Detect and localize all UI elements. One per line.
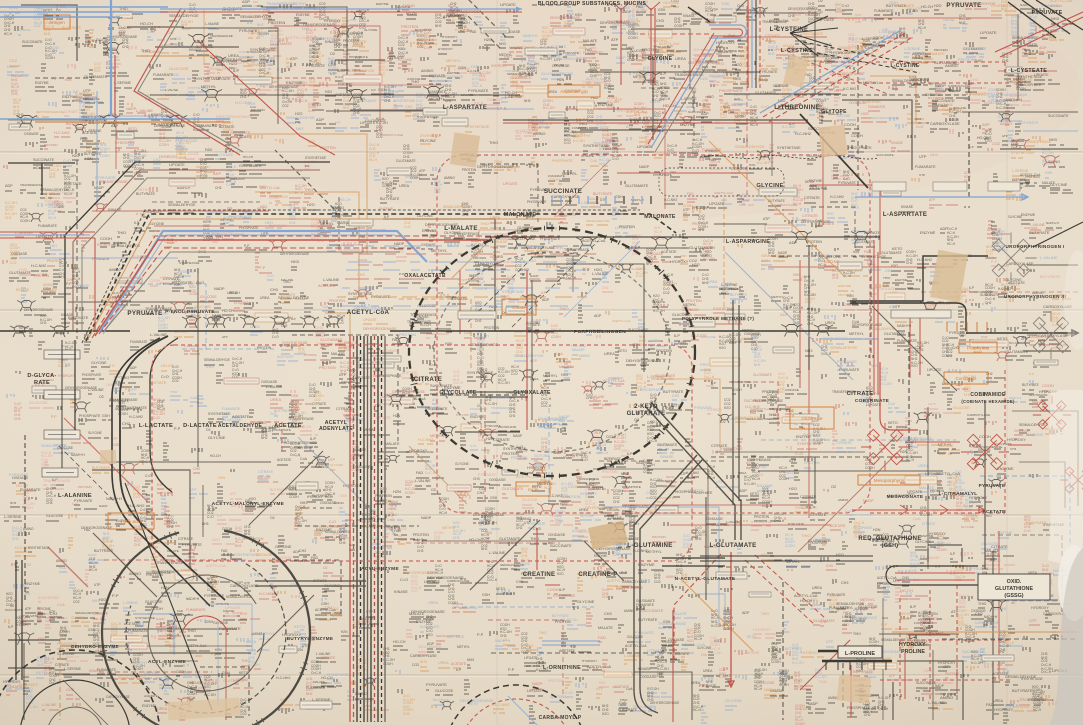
svg-text:OXIDASE: OXIDASE [548,532,566,537]
svg-text:GLYCINE: GLYCINE [961,525,974,529]
svg-text:CITRATE: CITRATE [387,55,404,60]
svg-text:DEHYDROGENASE: DEHYDROGENASE [460,699,494,703]
svg-text:O2: O2 [831,484,836,489]
svg-text:UREA: UREA [399,184,410,188]
svg-text:PYRUVATE: PYRUVATE [837,360,857,364]
svg-text:ADP: ADP [943,665,950,669]
svg-text:THIO: THIO [721,2,730,6]
svg-text:NH3: NH3 [10,501,16,505]
svg-text:CH2: CH2 [657,674,664,678]
svg-text:PHOSPHATE: PHOSPHATE [379,374,402,378]
svg-text:GLUTAMATE: GLUTAMATE [396,159,416,163]
svg-text:H2O: H2O [734,97,741,101]
svg-text:GLUTAMATE: GLUTAMATE [499,537,521,541]
svg-text:ATP: ATP [889,674,895,678]
svg-text:NH2: NH2 [343,106,350,110]
svg-text:ACETYL-CoA: ACETYL-CoA [626,110,648,114]
svg-text:O=C-H: O=C-H [297,99,308,103]
svg-text:ADP: ADP [680,254,686,258]
svg-text:H2O: H2O [249,497,256,501]
svg-text:ENZYME: ENZYME [35,81,50,85]
svg-text:UREA: UREA [438,661,449,665]
svg-text:FUMARATE: FUMARATE [636,603,655,607]
svg-text:MALATE: MALATE [598,626,613,630]
svg-text:HYDROXY: HYDROXY [994,707,1014,712]
svg-text:BUTYRATE: BUTYRATE [785,647,802,651]
svg-text:THIO: THIO [170,390,178,394]
svg-text:SUCCINATE: SUCCINATE [420,625,440,629]
svg-text:HC-H: HC-H [947,242,956,246]
svg-text:CH3: CH3 [826,564,833,568]
svg-text:CH2: CH2 [19,267,27,272]
svg-text:AMINO: AMINO [251,632,262,636]
svg-text:PROTEIN: PROTEIN [619,225,635,229]
svg-text:GLUTAMATE: GLUTAMATE [239,164,262,168]
svg-text:COOH: COOH [327,244,339,248]
svg-text:HYDROXY: HYDROXY [580,492,598,496]
svg-text:OXID.: OXID. [1007,579,1022,585]
svg-text:CH3: CH3 [661,85,669,90]
svg-text:MALONATE: MALONATE [644,214,676,220]
svg-text:CITRATE: CITRATE [1012,178,1027,182]
svg-text:PYRUVATE: PYRUVATE [478,473,497,477]
svg-text:MALATE: MALATE [583,39,598,43]
svg-text:FAD: FAD [819,679,827,684]
svg-text:UREA: UREA [530,377,540,381]
svg-text:H-C-NH2: H-C-NH2 [917,258,932,262]
svg-text:CH3: CH3 [910,569,917,573]
svg-text:COOH: COOH [405,491,415,495]
svg-text:CH2: CH2 [134,543,141,547]
svg-text:ADP: ADP [316,117,324,122]
svg-text:H2O: H2O [307,203,315,207]
svg-text:PHOSPHATE: PHOSPHATE [239,226,258,230]
svg-text:H-C-OH: H-C-OH [703,257,715,261]
svg-text:HO-CH: HO-CH [222,309,234,313]
svg-text:KINASE: KINASE [891,141,904,145]
svg-text:SYNTHETASE: SYNTHETASE [282,340,308,345]
svg-text:FUMARATE: FUMARATE [38,224,58,228]
svg-text:LIPOATE: LIPOATE [637,145,653,149]
svg-text:Citrate: Citrate [512,305,526,310]
svg-text:NH3: NH3 [1051,16,1059,21]
svg-text:CO2: CO2 [654,580,661,584]
svg-text:UREA: UREA [428,601,439,605]
svg-text:C=O: C=O [636,274,643,278]
svg-text:GLUTAMATE: GLUTAMATE [753,373,772,377]
svg-text:DEHYDRO-ENZYME: DEHYDRO-ENZYME [71,644,119,649]
svg-text:UTP: UTP [826,640,834,644]
svg-text:SEMIALDEHYDE: SEMIALDEHYDE [1019,423,1046,427]
svg-text:PROTEIN: PROTEIN [484,326,500,330]
svg-text:BUTYRATE: BUTYRATE [1022,383,1039,387]
svg-text:CH3: CH3 [11,92,18,96]
svg-text:BUTYRATE: BUTYRATE [136,192,156,196]
svg-text:H2N: H2N [599,681,606,685]
svg-text:HC-H: HC-H [906,458,915,462]
svg-text:CH3: CH3 [952,346,959,350]
svg-text:O2: O2 [27,563,31,567]
svg-text:FAD: FAD [205,148,213,152]
svg-text:C=O: C=O [267,274,274,278]
svg-text:METHYL: METHYL [771,295,784,299]
svg-text:LIPOATE: LIPOATE [964,515,979,519]
svg-text:C=O: C=O [845,508,853,513]
svg-text:cycle: cycle [528,487,539,492]
svg-text:METHYL: METHYL [201,85,216,89]
svg-text:CH3: CH3 [902,576,909,580]
svg-text:GLUTAMATE: GLUTAMATE [418,644,442,649]
svg-text:ACETATE: ACETATE [661,250,677,254]
svg-text:OXIDASE: OXIDASE [261,380,278,384]
svg-text:GLYCINE: GLYCINE [580,514,594,518]
svg-text:COOH: COOH [942,354,952,358]
svg-text:HYDROXY: HYDROXY [115,141,133,145]
svg-text:NADP: NADP [94,186,104,190]
svg-text:CO2: CO2 [992,142,1000,146]
svg-text:AMINO: AMINO [421,69,433,73]
svg-text:CH2: CH2 [434,538,441,542]
svg-text:CITRATE: CITRATE [493,437,510,442]
svg-text:COOH: COOH [568,485,579,489]
svg-text:SUCCINATE: SUCCINATE [1048,114,1069,118]
svg-text:L-VALINE: L-VALINE [928,700,945,705]
svg-text:L-ORNITHINE: L-ORNITHINE [543,665,581,671]
svg-text:ATP: ATP [222,335,228,339]
svg-text:NADP: NADP [513,434,523,438]
svg-text:ACETYL-CoA: ACETYL-CoA [582,239,606,243]
svg-text:L-SERINE: L-SERINE [475,263,489,267]
svg-text:NADP: NADP [214,287,225,291]
svg-text:ENZYME: ENZYME [1021,213,1036,217]
svg-text:PHOSPHATE: PHOSPHATE [327,673,350,677]
svg-text:L-VALINE: L-VALINE [1030,223,1046,227]
svg-text:UTP: UTP [94,583,100,587]
svg-text:O=C-H: O=C-H [487,578,498,582]
svg-text:CITRATE: CITRATE [922,522,935,526]
svg-text:Corrinoids: Corrinoids [956,376,978,381]
svg-text:ACETYL-CoA: ACETYL-CoA [625,644,647,648]
svg-text:COOH: COOH [991,101,1001,105]
svg-text:L-THREONINE: L-THREONINE [774,104,820,111]
svg-text:FUMARATE: FUMARATE [306,686,326,690]
svg-text:GSH: GSH [579,46,587,50]
svg-text:HYDROXY: HYDROXY [582,659,597,663]
svg-text:PROTEIN: PROTEIN [754,515,770,519]
svg-text:COOH: COOH [410,176,420,180]
svg-text:H-C-OH: H-C-OH [744,482,756,486]
svg-text:H2O: H2O [99,598,106,602]
svg-text:H2N: H2N [547,223,554,227]
svg-text:GLYCINE: GLYCINE [648,56,673,62]
svg-text:Aspartate grp: Aspartate grp [560,89,588,94]
svg-text:FAD: FAD [245,4,252,8]
svg-text:C=O: C=O [470,444,477,448]
svg-text:CH2: CH2 [672,394,679,398]
svg-text:METHYL: METHYL [562,172,577,176]
svg-text:KETO: KETO [805,180,814,184]
svg-text:NADP: NADP [421,516,432,520]
svg-text:CO2: CO2 [34,24,41,28]
svg-text:H2O: H2O [687,639,694,643]
svg-text:NADH+H: NADH+H [574,133,590,138]
svg-text:D-LACTATE: D-LACTATE [183,423,217,429]
svg-text:OXIDASE: OXIDASE [12,476,29,480]
svg-text:HYDROXY: HYDROXY [159,155,178,159]
svg-text:NADH+H: NADH+H [71,453,85,457]
svg-text:H-C-NH2: H-C-NH2 [418,438,433,442]
svg-text:GLYTOPE: GLYTOPE [821,109,847,115]
svg-text:ADP: ADP [739,489,747,493]
svg-text:OXIDASE: OXIDASE [429,74,446,78]
svg-text:CITRATE: CITRATE [312,402,327,406]
svg-text:P-P: P-P [112,593,119,598]
svg-text:GLYCINE: GLYCINE [208,435,226,440]
svg-text:O=C-H: O=C-H [1004,641,1015,645]
svg-text:KETO: KETO [618,349,627,353]
svg-text:CITRATE: CITRATE [711,443,728,448]
svg-text:COOH: COOH [551,335,561,339]
svg-text:PHOSPHATE: PHOSPHATE [79,414,101,418]
svg-text:ATP: ATP [432,398,439,402]
svg-text:AMINO: AMINO [43,283,54,287]
svg-text:METHYL: METHYL [849,332,864,336]
svg-text:HO-CH: HO-CH [563,455,575,459]
svg-text:L-SERINE: L-SERINE [505,95,523,99]
svg-text:SYNTHETASE: SYNTHETASE [47,616,67,620]
svg-text:NADP: NADP [394,242,405,246]
svg-text:PROTEIN: PROTEIN [251,108,265,112]
svg-text:GLYCINE: GLYCINE [697,646,712,650]
svg-text:CO2: CO2 [417,45,424,49]
svg-text:GLYCINE: GLYCINE [724,49,737,53]
svg-text:NADP: NADP [808,702,818,706]
svg-text:CH2: CH2 [641,8,647,12]
svg-text:O=C-H: O=C-H [1041,670,1052,674]
svg-text:ENZYME: ENZYME [598,103,614,107]
svg-text:H2N: H2N [215,648,222,652]
svg-text:BUTYRYL-ENZYME: BUTYRYL-ENZYME [287,636,333,641]
svg-text:H2O: H2O [295,112,303,116]
svg-text:H2N: H2N [900,450,907,454]
svg-text:MALATE: MALATE [1032,400,1047,404]
svg-text:PYRUVATE: PYRUVATE [966,46,987,51]
svg-text:H2O: H2O [265,220,273,225]
svg-text:THIO: THIO [585,482,594,487]
svg-text:PYRUVATE: PYRUVATE [759,70,778,74]
svg-text:H-C-NH2: H-C-NH2 [296,506,310,510]
svg-text:MALATE: MALATE [1042,181,1056,185]
svg-text:GLUCOSE: GLUCOSE [29,401,48,405]
svg-text:MALATE: MALATE [572,348,585,352]
svg-text:OXIDASE: OXIDASE [785,388,799,392]
svg-text:THIO: THIO [750,335,759,339]
svg-text:OXIDASE: OXIDASE [695,54,712,58]
svg-text:O=C-H: O=C-H [103,539,114,543]
svg-text:NADH+H: NADH+H [1046,221,1059,225]
svg-text:CH2: CH2 [289,221,296,225]
svg-text:L-VALINE: L-VALINE [185,152,199,156]
svg-text:GLYCINE: GLYCINE [91,361,107,365]
svg-text:HO-CH: HO-CH [921,5,933,9]
svg-text:COOH: COOH [150,279,161,283]
svg-text:H2O: H2O [719,346,726,350]
svg-text:GSH: GSH [165,633,173,637]
svg-text:H2O: H2O [827,212,834,216]
svg-text:SEMIALDEHYDE: SEMIALDEHYDE [586,219,610,223]
svg-text:Fatty acid: Fatty acid [121,519,141,524]
svg-text:COOH: COOH [957,623,967,627]
svg-text:GSH: GSH [885,269,893,273]
svg-text:OXIDASE: OXIDASE [932,104,949,108]
svg-text:THIO: THIO [761,612,769,616]
svg-text:HO-CH: HO-CH [406,12,417,16]
svg-text:BUTYRATE: BUTYRATE [593,192,613,196]
svg-text:FUMARATE: FUMARATE [153,73,174,77]
svg-text:H-C-NH2: H-C-NH2 [270,39,284,43]
svg-text:SYNTHETASE: SYNTHETASE [179,261,199,265]
svg-text:H-C-NH2: H-C-NH2 [795,131,811,136]
svg-text:PROTEIN: PROTEIN [804,461,820,465]
svg-text:CH2: CH2 [646,491,653,495]
svg-text:KETO: KETO [36,670,47,675]
svg-text:SEMIALDEHYDE: SEMIALDEHYDE [347,69,375,73]
svg-text:PYRUVATE: PYRUVATE [563,51,579,55]
svg-text:MALONATE: MALONATE [504,212,537,218]
svg-text:NADP: NADP [739,337,750,341]
svg-text:P-P: P-P [259,266,266,270]
svg-text:PROTEIN: PROTEIN [462,168,477,172]
svg-text:FUMARATE: FUMARATE [829,606,850,610]
svg-text:BUTYRATE: BUTYRATE [447,635,465,639]
svg-text:H2O: H2O [707,95,714,99]
svg-text:SEMIALDEHYDE: SEMIALDEHYDE [41,444,68,448]
svg-text:P-P: P-P [1029,372,1034,376]
svg-text:SYNTHETASE: SYNTHETASE [394,99,415,103]
svg-text:PROTEIN: PROTEIN [381,89,398,94]
svg-text:GLUTAMATE: GLUTAMATE [808,539,831,543]
svg-text:CARBOXYLASE: CARBOXYLASE [380,133,403,137]
svg-text:BUTYRATE: BUTYRATE [663,389,684,394]
svg-text:L-ASPARTATE: L-ASPARTATE [443,105,487,111]
svg-text:OXIDASE: OXIDASE [24,132,39,136]
svg-text:PYRUVATE: PYRUVATE [971,567,990,571]
svg-text:CO2: CO2 [650,496,657,500]
svg-text:FUMARATE: FUMARATE [970,92,987,96]
svg-text:SEMIALDEHYDE: SEMIALDEHYDE [514,354,544,358]
svg-text:H2O: H2O [749,163,756,167]
svg-text:H2O: H2O [934,4,942,8]
svg-text:COOH: COOH [20,219,30,223]
svg-text:COOH: COOH [1042,383,1054,388]
svg-text:THIO: THIO [539,631,547,635]
svg-text:MALATE: MALATE [359,617,374,621]
svg-text:6-P: 6-P [616,19,623,24]
svg-text:KETO: KETO [312,103,322,107]
svg-text:NH2: NH2 [959,605,966,609]
svg-text:CITRATE: CITRATE [526,323,541,327]
svg-text:UTP: UTP [1029,619,1037,623]
svg-text:CARBOXYLASE: CARBOXYLASE [967,413,990,417]
svg-text:DEHYDROGENASE: DEHYDROGENASE [280,252,309,256]
svg-text:CARBOXYLASE: CARBOXYLASE [410,654,437,658]
svg-text:LIPOATE: LIPOATE [907,490,923,494]
svg-text:THIO: THIO [141,49,150,53]
svg-text:SUCCINATE: SUCCINATE [550,544,572,548]
svg-text:SYNTHETASE: SYNTHETASE [234,552,260,557]
svg-text:HC-H: HC-H [750,123,759,127]
svg-text:ACETALDEHYDE: ACETALDEHYDE [218,423,263,429]
svg-text:NH2: NH2 [768,52,775,56]
svg-text:TRANSFERASE: TRANSFERASE [593,141,616,145]
svg-text:MALATE: MALATE [385,442,400,446]
svg-text:GSH: GSH [458,66,466,70]
svg-text:C=O: C=O [683,545,690,549]
svg-text:COBYRINATE: COBYRINATE [855,398,890,404]
svg-text:GLYCINE: GLYCINE [330,463,343,467]
svg-text:L-SERINE: L-SERINE [681,97,697,101]
svg-text:FUMARATE: FUMARATE [222,407,241,411]
svg-text:CARBOXYLASE: CARBOXYLASE [930,121,960,126]
svg-text:NADP: NADP [935,684,944,688]
svg-text:H-C-NH2: H-C-NH2 [259,592,273,596]
svg-text:UREA: UREA [260,296,270,300]
svg-text:CH3: CH3 [12,537,19,541]
svg-text:PROTEIN: PROTEIN [399,333,416,337]
svg-text:ACETATE: ACETATE [277,458,291,462]
svg-text:L-CYSTINE: L-CYSTINE [890,63,919,69]
svg-text:NH3: NH3 [524,99,531,103]
svg-text:PORPHOBILINOGEN: PORPHOBILINOGEN [574,329,626,335]
svg-text:FAD: FAD [805,73,812,77]
svg-text:NH2: NH2 [306,692,313,696]
svg-text:ENZYME: ENZYME [286,80,303,85]
svg-text:CREATINE: CREATINE [523,572,556,578]
svg-text:ADP: ADP [542,298,550,302]
svg-text:NADH+H: NADH+H [764,688,780,692]
svg-text:P-P: P-P [174,427,181,431]
svg-text:CITRATE: CITRATE [321,656,336,660]
svg-text:H2O: H2O [479,78,486,82]
svg-text:L-ALANINE: L-ALANINE [58,493,92,499]
svg-text:L-LACTATE: L-LACTATE [139,423,173,429]
svg-text:PHOSPHATE: PHOSPHATE [552,159,573,163]
svg-text:NADP: NADP [337,69,347,73]
svg-text:THIO: THIO [187,629,196,633]
svg-text:6-P: 6-P [969,145,974,149]
svg-text:HYDROXY: HYDROXY [409,449,428,453]
svg-text:NADP: NADP [639,165,650,169]
svg-text:P-P: P-P [109,364,116,368]
svg-text:FAD: FAD [221,549,228,553]
svg-text:FAD: FAD [59,565,67,570]
svg-text:C=O: C=O [478,438,485,442]
svg-text:CH3: CH3 [384,99,391,103]
svg-text:FUMARATE: FUMARATE [914,621,930,625]
svg-text:DEHYDROGENASE: DEHYDROGENASE [550,16,581,20]
svg-text:BUTYRATE: BUTYRATE [380,197,400,201]
svg-text:L-SERINE: L-SERINE [742,651,760,655]
svg-text:NADP: NADP [126,107,137,111]
svg-text:THIO: THIO [205,365,214,369]
svg-text:ACETYL-CoA: ACETYL-CoA [769,19,790,23]
svg-text:PYRUVATE: PYRUVATE [485,424,501,428]
svg-text:H-C-NH2: H-C-NH2 [276,676,290,680]
svg-text:MESACONATE: MESACONATE [887,494,924,500]
svg-text:GLUTAMATE: GLUTAMATE [502,487,524,491]
svg-text:H-C-NH2: H-C-NH2 [664,198,677,202]
svg-text:BUTYRATE: BUTYRATE [1018,120,1039,125]
